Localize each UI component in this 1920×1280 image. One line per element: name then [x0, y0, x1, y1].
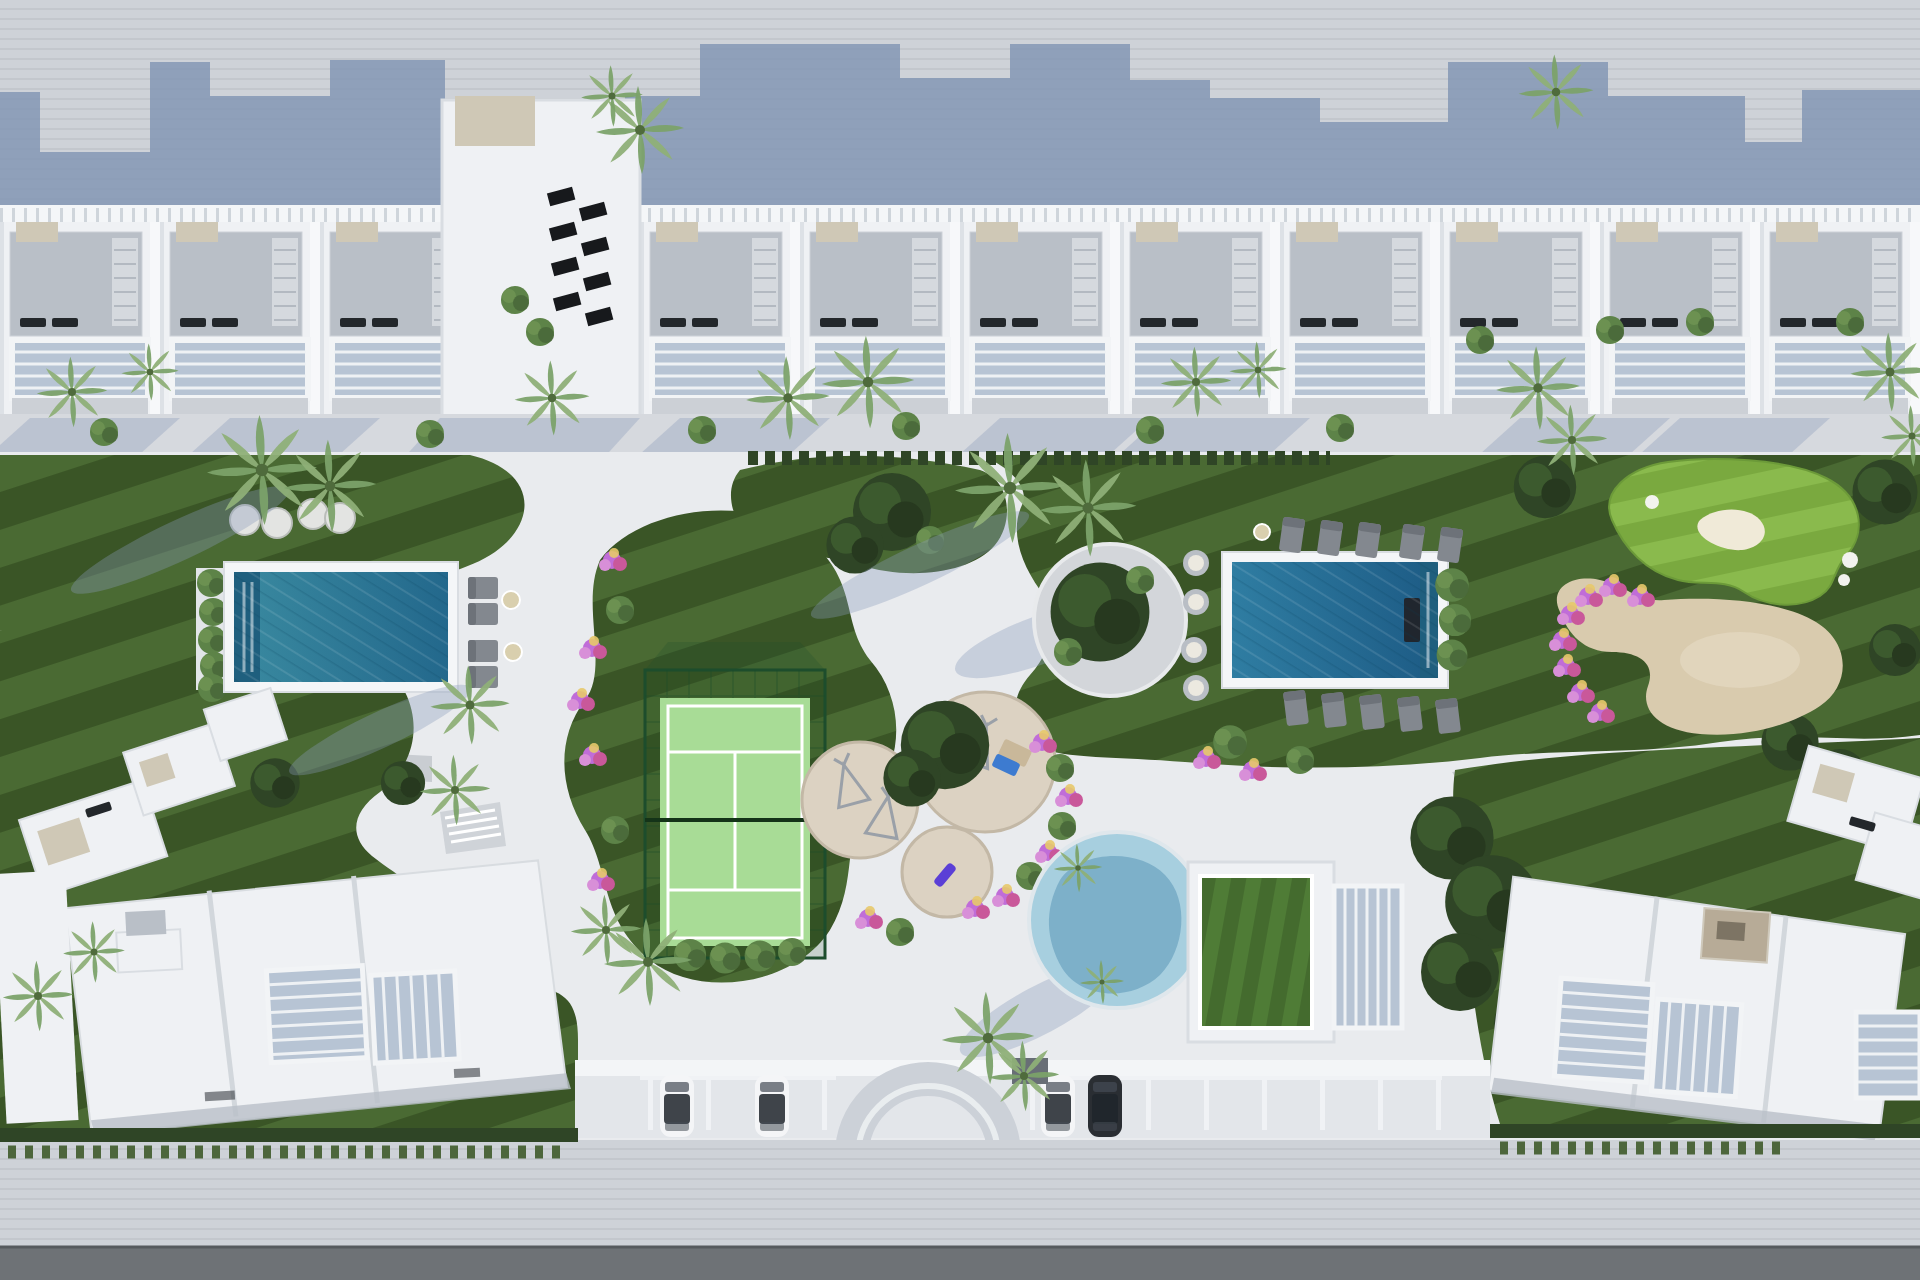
roof-box-top	[125, 910, 166, 936]
pergola	[1554, 978, 1653, 1082]
sun-lounger	[468, 666, 498, 688]
golf-stone	[1838, 574, 1850, 586]
playground-tree	[883, 749, 940, 806]
tower-block	[442, 100, 640, 418]
roof-box	[116, 929, 182, 972]
sun-lounger	[468, 603, 498, 625]
sun-lounger	[468, 640, 498, 662]
street-south	[0, 1124, 1920, 1280]
sun-lounger	[1317, 520, 1344, 557]
sun-lounger	[1279, 517, 1306, 554]
pool-east-shimmer	[1232, 562, 1438, 678]
hedge-strip-east	[1490, 1124, 1920, 1138]
townhouse-unit	[1280, 222, 1440, 418]
townhouse-unit	[1600, 222, 1760, 418]
pool-west-shimmer	[234, 572, 448, 682]
golf-stone	[1645, 495, 1659, 509]
sun-lounger	[1399, 524, 1426, 561]
stool	[1183, 675, 1209, 701]
window-slit	[454, 1068, 480, 1078]
stool	[1183, 589, 1209, 615]
sun-lounger	[1355, 522, 1382, 559]
pergola	[1334, 886, 1402, 1028]
hedge-strip-west	[0, 1128, 578, 1142]
sun-lounger	[468, 577, 498, 599]
garden-tower	[442, 96, 640, 418]
pergola	[1652, 999, 1742, 1097]
sun-lounger	[1437, 527, 1464, 564]
sun-lounger	[1283, 690, 1309, 726]
townhouse-unit	[160, 222, 320, 418]
window-slit	[205, 1091, 235, 1102]
pergola	[371, 971, 459, 1063]
pergola	[1856, 1012, 1920, 1098]
side-table	[502, 591, 520, 609]
site-plan-render: Aerial top-down 3D render of a white Med…	[0, 0, 1920, 1280]
townhouse-unit	[960, 222, 1120, 418]
sun-lounger	[1435, 698, 1461, 734]
townhouse-unit	[1120, 222, 1280, 418]
sun-lounger	[1397, 696, 1423, 732]
tower-roof-box	[455, 96, 535, 146]
street-band	[0, 0, 1920, 225]
side-table	[1254, 524, 1270, 540]
sun-lounger	[1359, 694, 1385, 730]
roof-box-top	[1716, 921, 1745, 941]
stool	[1183, 550, 1209, 576]
bunker-highlight	[1680, 632, 1800, 688]
pergola	[266, 966, 367, 1063]
sun-lounger	[1321, 692, 1347, 728]
road	[0, 1246, 1920, 1280]
clubhouse	[1188, 862, 1402, 1042]
parked-car	[660, 1075, 694, 1137]
stool	[1181, 637, 1207, 663]
parked-car	[1041, 1075, 1075, 1137]
parked-car	[755, 1075, 789, 1137]
parked-car	[1088, 1075, 1122, 1137]
side-table	[504, 643, 522, 661]
golf-stone	[1842, 552, 1858, 568]
grass-roof	[1200, 876, 1312, 1028]
court-cage-top	[645, 642, 825, 670]
pool-east-shrub-bed	[1435, 568, 1471, 670]
